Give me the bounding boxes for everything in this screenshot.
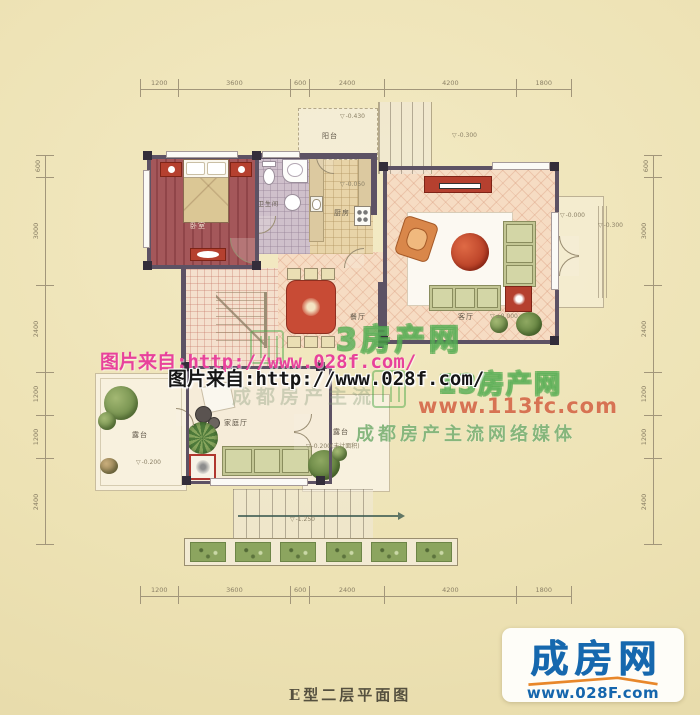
level-marker-icon: ▽ <box>306 443 311 450</box>
elevation-value: -0.200(未计面积) <box>312 443 360 450</box>
dim-segment: 3600 <box>178 586 291 604</box>
dim-segment: 4200 <box>384 79 515 97</box>
hedge-bush <box>371 542 407 562</box>
terrace-left-bush <box>100 458 118 474</box>
dimension-row-bottom: 1200 3600 600 2400 4200 1800 <box>140 586 572 604</box>
stairs-direction-arrow <box>238 515 398 517</box>
wall-corner <box>550 336 559 345</box>
level-marker-icon: ▽ <box>136 459 141 466</box>
elevation-value: -0.300 <box>458 132 477 139</box>
room-label-living: 客厅 <box>458 312 474 322</box>
elevation-stair-bottom: ▽-1.250 <box>290 516 315 523</box>
dim-label: 4200 <box>385 79 515 87</box>
bathroom-window <box>262 151 300 158</box>
brand-url-watermark: www.113fc.com <box>418 396 618 417</box>
bathroom-sink-basin <box>287 163 303 177</box>
lamp <box>238 166 245 173</box>
hedge-bush <box>190 542 226 562</box>
stairs-arrow-head <box>398 512 405 520</box>
wall-corner <box>379 162 388 171</box>
dim-segment: 2400 <box>36 285 54 372</box>
dim-segment: 2400 <box>36 458 54 545</box>
dim-label: 3000 <box>640 223 648 240</box>
porch-steps <box>598 206 610 298</box>
nightstand-left <box>160 162 182 177</box>
dim-segment: 2400 <box>644 285 662 372</box>
dim-segment: 4200 <box>384 586 515 604</box>
bench-cushion <box>197 251 219 258</box>
dim-segment: 2400 <box>644 458 662 545</box>
dimension-row-top: 1200 3600 600 2400 4200 1800 <box>140 79 572 97</box>
toilet-bowl <box>263 168 275 185</box>
toilet <box>262 161 276 167</box>
wall-corner <box>316 476 325 485</box>
living-top-window <box>492 162 550 170</box>
bed <box>183 159 229 223</box>
tv <box>439 183 481 189</box>
elevation-entry-step: ▽-0.300 <box>598 222 623 229</box>
dim-segment: 1200 <box>140 586 178 604</box>
dining-table <box>286 280 336 334</box>
dim-segment: 1800 <box>516 79 572 97</box>
tv-cabinet <box>424 176 492 193</box>
stove <box>354 206 371 226</box>
dim-segment: 2400 <box>309 79 384 97</box>
level-marker-icon: ▽ <box>452 132 457 139</box>
sofa-cushion <box>282 449 309 473</box>
dim-segment: 600 <box>290 586 309 604</box>
dim-label: 2400 <box>32 493 40 510</box>
dim-segment: 1200 <box>140 79 178 97</box>
wall-corner <box>252 261 261 270</box>
dim-segment: 1200 <box>36 415 54 458</box>
room-label-terrace-right: 露台 <box>333 427 349 437</box>
bedroom-left-window <box>143 170 150 248</box>
dim-label: 2400 <box>310 79 384 87</box>
dim-label: 600 <box>34 160 42 172</box>
dim-segment: 1200 <box>644 372 662 415</box>
room-label-bathroom: 卫生间 <box>258 199 279 208</box>
mat-flower <box>196 460 210 474</box>
sofa-cushion <box>432 288 453 308</box>
elevation-living: ▽±0.000 <box>490 313 518 320</box>
dim-segment: 3000 <box>644 177 662 285</box>
kitchen-right-wall <box>371 153 377 215</box>
wall-corner <box>379 336 388 345</box>
family-bottom-window <box>210 478 308 486</box>
dim-segment: 600 <box>290 79 309 97</box>
dim-label: 1200 <box>640 386 648 403</box>
dim-label: 1200 <box>32 429 40 446</box>
room-label-terrace-left: 露台 <box>132 430 148 440</box>
room-label-dining: 餐厅 <box>350 312 366 322</box>
sink-bowl <box>312 199 321 210</box>
elevation-value: -0.300 <box>604 222 623 229</box>
dimension-column-right: 600 3000 2400 1200 1200 2400 <box>644 155 662 545</box>
coffee-table-round <box>451 233 489 271</box>
brand-logo-watermark-lower <box>372 370 406 408</box>
dim-segment: 2400 <box>309 586 384 604</box>
dim-label: 600 <box>291 586 309 594</box>
hedge-bush <box>416 542 452 562</box>
dim-label: 1200 <box>640 429 648 446</box>
floor-plan-page: 1200 3600 600 2400 4200 1800 1200 3600 6… <box>0 0 700 715</box>
dim-label: 4200 <box>385 586 515 594</box>
pillow <box>186 162 205 175</box>
nightstand-right <box>230 162 252 177</box>
dim-label: 2400 <box>32 321 40 338</box>
wall-corner <box>143 261 152 270</box>
wall-corner <box>316 362 325 371</box>
hedge-bush <box>235 542 271 562</box>
elevation-value: -0.050 <box>346 181 365 188</box>
wall-corner <box>252 151 261 160</box>
family-sofa <box>222 446 312 476</box>
elevation-value: ±0.000 <box>496 313 518 320</box>
lamp <box>168 166 175 173</box>
dim-label: 1800 <box>517 79 571 87</box>
side-table-flower <box>513 293 525 305</box>
hedge-planter <box>184 538 458 566</box>
dim-label: 3600 <box>179 79 291 87</box>
family-palm-plant <box>186 422 218 454</box>
sofa-bottom <box>429 285 501 311</box>
dim-segment: 3000 <box>36 177 54 285</box>
room-label-balcony: 阳台 <box>322 131 338 141</box>
wash-basin-round <box>284 194 301 211</box>
wall-corner <box>143 151 152 160</box>
elevation-terrace-right: ▽-0.200(未计面积) <box>306 441 360 450</box>
room-label-family: 家庭厅 <box>224 418 248 428</box>
level-marker-icon: ▽ <box>340 181 345 188</box>
hedge-bush <box>326 542 362 562</box>
living-plant-palm <box>516 312 542 336</box>
elevation-value: -0.200 <box>142 459 161 466</box>
elevation-value: -1.250 <box>296 516 315 523</box>
elevation-kitchen: ▽-0.050 <box>340 181 365 188</box>
kitchen-sink <box>310 196 323 212</box>
dim-label: 600 <box>291 79 309 87</box>
dim-label: 1200 <box>141 586 178 594</box>
elevation-stair-top: ▽-0.300 <box>452 132 477 139</box>
room-label-kitchen: 厨房 <box>334 208 350 218</box>
brand-logo-watermark-upper <box>250 330 284 364</box>
side-table <box>505 286 532 312</box>
sofa-cushion <box>254 449 281 473</box>
table-centerpiece <box>302 298 320 316</box>
bedroom-top-window <box>166 151 238 158</box>
elevation-terrace-left: ▽-0.200 <box>136 459 161 466</box>
dining-chair <box>304 336 318 348</box>
sofa-right <box>503 221 536 287</box>
dining-chair <box>321 268 335 280</box>
elevation-entry-outer: ▽-0.000 <box>560 212 585 219</box>
elevation-balcony: ▽-0.430 <box>340 113 365 120</box>
wall-corner <box>182 362 191 371</box>
dimension-column-left: 600 3000 2400 1200 1200 2400 <box>36 155 54 545</box>
sofa-cushion <box>477 288 498 308</box>
sofa-cushion <box>506 265 533 284</box>
hedge-bush <box>280 542 316 562</box>
level-marker-icon: ▽ <box>598 222 603 229</box>
level-marker-icon: ▽ <box>490 313 495 320</box>
pillow <box>207 162 226 175</box>
dim-label: 3600 <box>179 586 291 594</box>
dim-label: 1800 <box>517 586 571 594</box>
exterior-stairs-bottom <box>233 489 373 539</box>
room-label-bedroom: 卧室 <box>190 221 206 231</box>
elevation-value: -0.000 <box>566 212 585 219</box>
family-mat <box>189 454 216 480</box>
dim-label: 2400 <box>640 321 648 338</box>
sofa-cushion <box>225 449 252 473</box>
dim-segment: 3600 <box>178 79 291 97</box>
brand-watermark-text-lower: 13房产网 <box>438 372 562 398</box>
sofa-cushion <box>506 224 533 243</box>
dim-label: 2400 <box>310 586 384 594</box>
wall-corner <box>550 162 559 171</box>
sofa-cushion <box>455 288 476 308</box>
dim-label: 1200 <box>141 79 178 87</box>
dim-segment: 1800 <box>516 586 572 604</box>
bed-pillows <box>184 160 228 178</box>
dining-chair <box>287 336 301 348</box>
chengfangwang-brand-text: 成房网 <box>530 628 662 683</box>
level-marker-icon: ▽ <box>340 113 345 120</box>
dim-label: 600 <box>642 160 650 172</box>
living-right-window <box>551 212 559 290</box>
dining-chair <box>321 336 335 348</box>
plan-caption: E型二层平面图 <box>0 684 700 705</box>
terrace-left-tree-small <box>98 412 116 430</box>
dining-chair <box>287 268 301 280</box>
dining-chair <box>304 268 318 280</box>
hall-left-wall <box>181 266 186 368</box>
dim-segment: 1200 <box>644 415 662 458</box>
armchair-cushion <box>404 225 430 252</box>
dim-segment: 600 <box>36 155 54 177</box>
level-marker-icon: ▽ <box>560 212 565 219</box>
sofa-cushion <box>506 245 533 264</box>
wall-corner <box>182 476 191 485</box>
elevation-value: -0.430 <box>346 113 365 120</box>
bed-end-bench <box>190 248 226 261</box>
dim-label: 1200 <box>32 386 40 403</box>
level-marker-icon: ▽ <box>290 516 295 523</box>
dim-segment: 1200 <box>36 372 54 415</box>
dim-segment: 600 <box>644 155 662 177</box>
dim-label: 3000 <box>32 223 40 240</box>
dim-label: 2400 <box>640 493 648 510</box>
